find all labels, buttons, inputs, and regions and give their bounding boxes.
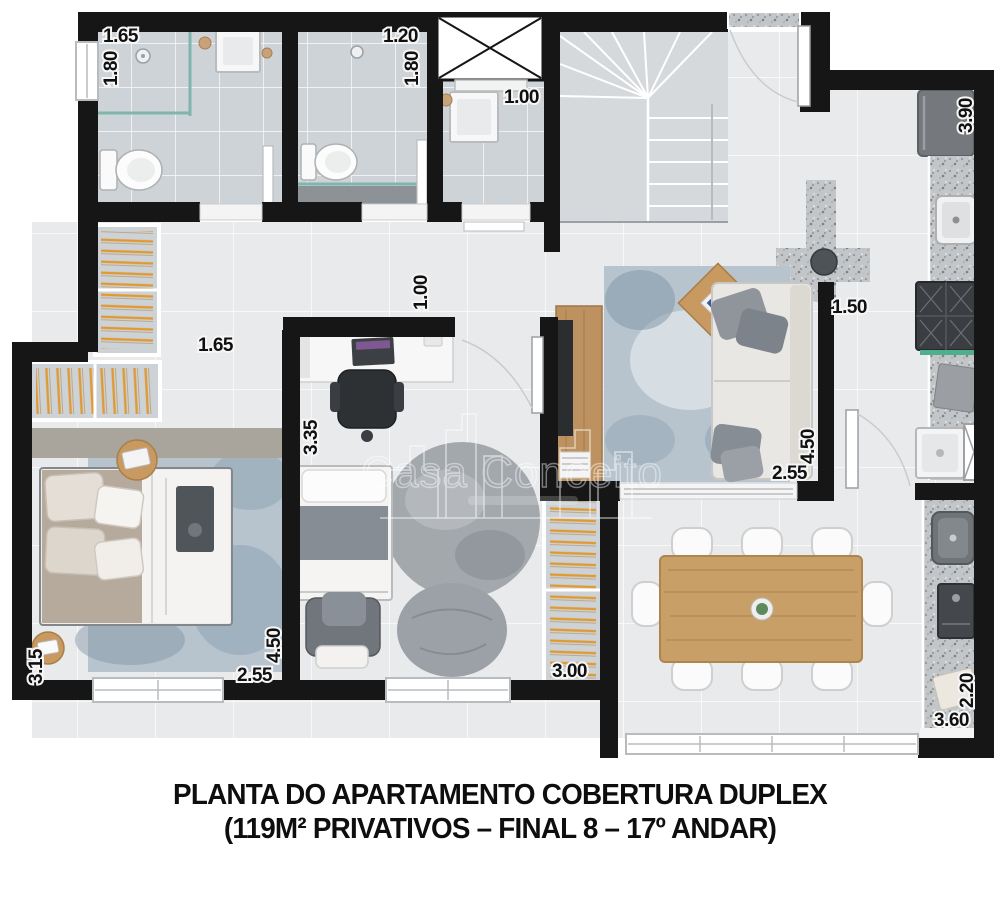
dining-window bbox=[626, 734, 918, 754]
dim-master-side: 3.15 bbox=[26, 648, 47, 684]
dim-office-depth: 3.35 bbox=[301, 419, 322, 455]
entrance-door-leaf bbox=[798, 26, 810, 106]
cutting-board bbox=[933, 363, 979, 412]
closet-vertical bbox=[95, 225, 159, 355]
dim-kitchen-length: 3.90 bbox=[956, 98, 977, 133]
bedroom2-window bbox=[386, 678, 510, 702]
floor-cushion bbox=[397, 583, 507, 677]
bath1-window bbox=[76, 42, 98, 100]
downlight bbox=[262, 48, 272, 58]
toilet bbox=[301, 144, 357, 180]
downlight bbox=[199, 37, 211, 49]
dim-balcony-length: 3.60 bbox=[934, 710, 969, 731]
dim-office-door: 1.00 bbox=[411, 275, 432, 310]
watermark-subline bbox=[468, 496, 578, 505]
caption-line1: PLANTA DO APARTAMENTO COBERTURA DUPLEX bbox=[20, 778, 980, 812]
dim-bathroom1-depth: 1.80 bbox=[101, 51, 122, 86]
dim-kitchen-corridor: 1.50 bbox=[832, 297, 867, 318]
dining-table bbox=[660, 556, 862, 662]
master-window bbox=[93, 678, 223, 702]
tv bbox=[558, 320, 573, 436]
dim-closet-corridor: 1.65 bbox=[198, 335, 234, 356]
dim-living-width: 2.55 bbox=[772, 463, 808, 484]
kitchen-sink bbox=[936, 196, 976, 244]
bath1-door-leaf bbox=[263, 146, 273, 208]
entry-stool bbox=[811, 249, 837, 275]
laundry-tank bbox=[916, 428, 964, 478]
shower-head bbox=[351, 46, 363, 58]
dim-bathroom2-width: 1.20 bbox=[383, 26, 418, 47]
bath1-threshold bbox=[200, 204, 262, 220]
bath2-door-leaf bbox=[417, 140, 427, 204]
elevator-shaft bbox=[437, 16, 543, 91]
floorplan-page: Casa Conceito 1.65 1.80 1.20 1.80 1.00 3… bbox=[0, 0, 1000, 900]
dim-master-width: 2.55 bbox=[237, 665, 273, 686]
dim-bathroom1-width: 1.65 bbox=[103, 26, 139, 47]
glass-shelf bbox=[920, 350, 974, 355]
bed-runner bbox=[176, 486, 214, 552]
toilet bbox=[100, 150, 162, 190]
grill bbox=[938, 584, 974, 638]
dim-living-depth: 4.50 bbox=[798, 429, 819, 464]
sofa bbox=[709, 283, 812, 483]
armchair bbox=[306, 592, 380, 668]
dim-master-depth: 4.50 bbox=[264, 628, 285, 663]
balcony-sink bbox=[932, 512, 974, 564]
lavabo-door-leaf bbox=[464, 222, 524, 231]
bedroom2-closet bbox=[544, 495, 602, 685]
caption-line2: (119M² PRIVATIVOS – FINAL 8 – 17º ANDAR) bbox=[20, 812, 980, 846]
plan-caption: PLANTA DO APARTAMENTO COBERTURA DUPLEX (… bbox=[0, 778, 1000, 846]
headboard-panel bbox=[32, 428, 282, 458]
dim-bedroom2-width: 3.00 bbox=[552, 661, 587, 682]
dim-balcony-width: 2.20 bbox=[957, 673, 978, 708]
floorplan-drawing: Casa Conceito 1.65 1.80 1.20 1.80 1.00 3… bbox=[0, 0, 1000, 770]
bedroom2-door-leaf bbox=[532, 337, 543, 413]
stove bbox=[916, 282, 976, 350]
closet-horizontal bbox=[30, 362, 160, 420]
double-bed bbox=[40, 468, 232, 625]
lavabo-threshold bbox=[462, 204, 530, 220]
shower-bench bbox=[298, 186, 420, 204]
watermark-text: Casa Conceito bbox=[361, 448, 663, 497]
kitchen-door-leaf bbox=[846, 410, 858, 488]
dim-lavabo-width: 1.00 bbox=[504, 87, 539, 108]
entrance-threshold bbox=[728, 12, 800, 28]
bath2-threshold bbox=[362, 204, 427, 220]
staircase bbox=[560, 32, 728, 222]
dim-bathroom2-depth: 1.80 bbox=[402, 51, 423, 86]
